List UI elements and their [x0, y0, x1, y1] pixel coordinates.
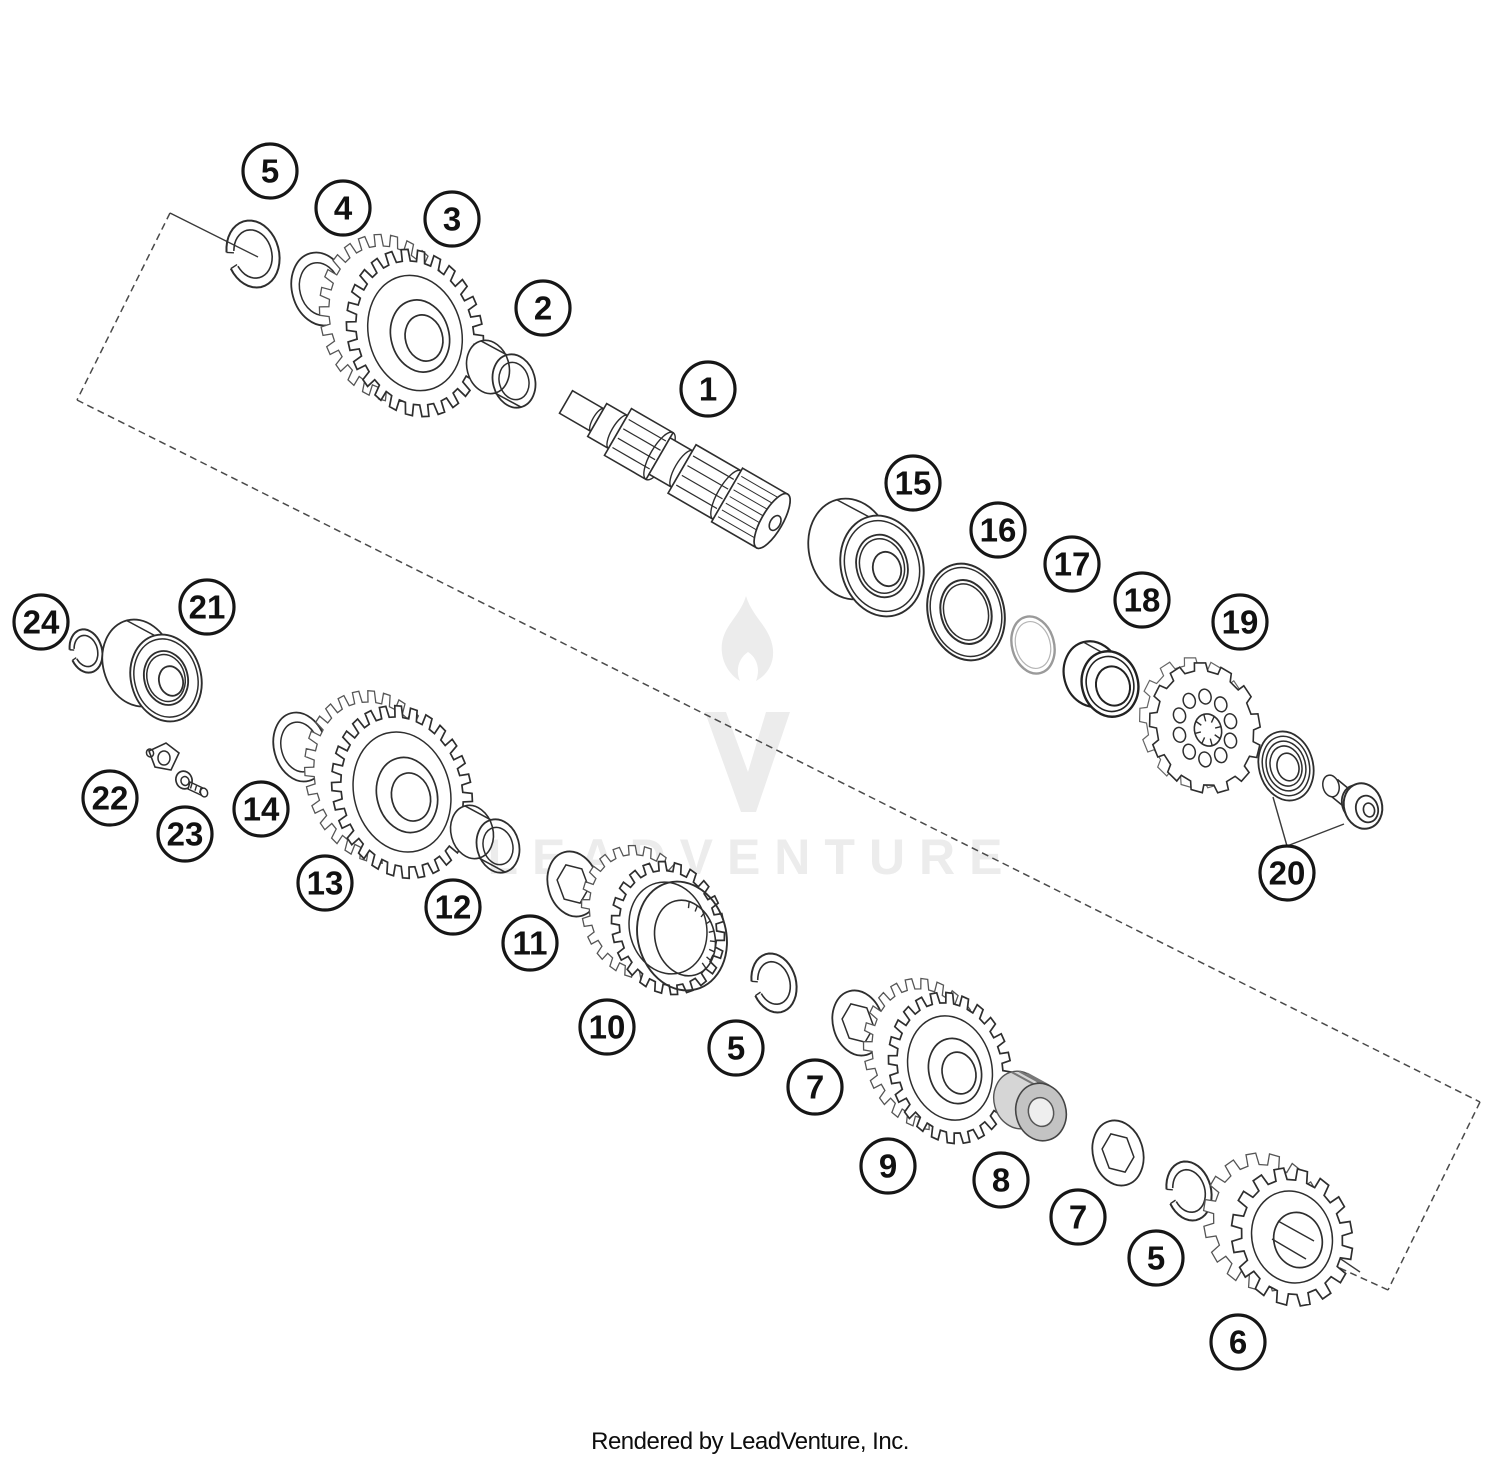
callout-number: 20 [1269, 855, 1306, 892]
part-screw-23 [173, 769, 208, 798]
callout-16[interactable]: 16 [971, 503, 1025, 557]
callout-number: 5 [261, 153, 279, 190]
leader-line [170, 213, 258, 257]
callout-8[interactable]: 8 [974, 1153, 1028, 1207]
callout-number: 18 [1124, 582, 1161, 619]
callout-number: 16 [980, 512, 1017, 549]
callout-5[interactable]: 5 [243, 144, 297, 198]
part-gear-9 [864, 979, 1012, 1144]
leader-line [1287, 824, 1344, 846]
callout-2[interactable]: 2 [516, 281, 570, 335]
part-washer-20 [1251, 725, 1321, 807]
callout-number: 1 [699, 371, 717, 408]
callout-14[interactable]: 14 [234, 782, 288, 836]
callout-number: 3 [443, 201, 461, 238]
callout-number: 4 [334, 190, 353, 227]
callout-number: 14 [243, 791, 280, 828]
part-oil-jet-22 [145, 743, 179, 770]
callout-4[interactable]: 4 [316, 181, 370, 235]
callout-number: 5 [1147, 1240, 1165, 1277]
callout-1[interactable]: 1 [681, 362, 735, 416]
part-ring-24 [70, 629, 103, 672]
part-gear-6 [1204, 1153, 1353, 1306]
part-bushing-2 [461, 335, 542, 412]
callout-23[interactable]: 23 [158, 807, 212, 861]
callout-20[interactable]: 20 [1260, 846, 1314, 900]
callout-number: 5 [727, 1030, 745, 1067]
transmission-exploded-diagram: LEADVENTURE54321151617181924212223141312… [0, 0, 1500, 1474]
callout-number: 13 [307, 865, 344, 902]
part-snap-ring-5b [751, 954, 796, 1013]
callout-11[interactable]: 11 [503, 916, 557, 970]
callout-3[interactable]: 3 [425, 192, 479, 246]
part-sprocket-19 [1140, 658, 1261, 793]
callout-number: 8 [992, 1162, 1010, 1199]
callout-number: 17 [1054, 546, 1091, 583]
callout-number: 12 [435, 889, 472, 926]
callout-17[interactable]: 17 [1045, 537, 1099, 591]
callout-10[interactable]: 10 [580, 1000, 634, 1054]
callout-15[interactable]: 15 [886, 456, 940, 510]
dashed-outline-segment [1388, 1102, 1480, 1290]
v-logo-icon [705, 712, 790, 812]
callout-number: 11 [513, 925, 548, 962]
callout-number: 19 [1222, 604, 1259, 641]
part-gear-13 [305, 691, 473, 879]
footer-credit: Rendered by LeadVenture, Inc. [0, 1428, 1500, 1456]
part-snap-ring-5c [1166, 1162, 1211, 1221]
callout-9[interactable]: 9 [861, 1139, 915, 1193]
callout-6[interactable]: 6 [1211, 1315, 1265, 1369]
part-seal-16 [917, 555, 1016, 669]
callout-number: 23 [167, 816, 204, 853]
callout-number: 6 [1229, 1324, 1247, 1361]
part-lock-washer-7b [1085, 1115, 1150, 1192]
callout-22[interactable]: 22 [83, 771, 137, 825]
part-o-ring-17 [1005, 612, 1061, 679]
callout-13[interactable]: 13 [298, 856, 352, 910]
callout-number: 7 [1069, 1199, 1087, 1236]
callout-12[interactable]: 12 [426, 880, 480, 934]
flame-icon [722, 596, 773, 681]
callout-7[interactable]: 7 [1051, 1190, 1105, 1244]
part-bolt-20 [1320, 773, 1387, 833]
callout-number: 15 [895, 465, 932, 502]
callout-24[interactable]: 24 [14, 595, 68, 649]
part-collar-18 [1056, 635, 1145, 723]
parts-diagram-page: LEADVENTURE54321151617181924212223141312… [0, 0, 1500, 1474]
callout-18[interactable]: 18 [1115, 573, 1169, 627]
callout-number: 7 [806, 1069, 824, 1106]
part-shaft-1 [560, 391, 797, 553]
callout-5[interactable]: 5 [1129, 1231, 1183, 1285]
callout-number: 21 [189, 589, 226, 626]
part-gear-3 [319, 234, 483, 416]
callout-21[interactable]: 21 [180, 580, 234, 634]
dashed-outline-segment [77, 213, 170, 400]
leader-line [1273, 797, 1287, 846]
callout-19[interactable]: 19 [1213, 595, 1267, 649]
callout-number: 2 [534, 290, 552, 327]
callout-5[interactable]: 5 [709, 1021, 763, 1075]
callout-number: 24 [23, 604, 60, 641]
callout-number: 10 [589, 1009, 626, 1046]
callout-number: 9 [879, 1148, 897, 1185]
callout-number: 22 [92, 780, 129, 817]
callout-7[interactable]: 7 [788, 1060, 842, 1114]
